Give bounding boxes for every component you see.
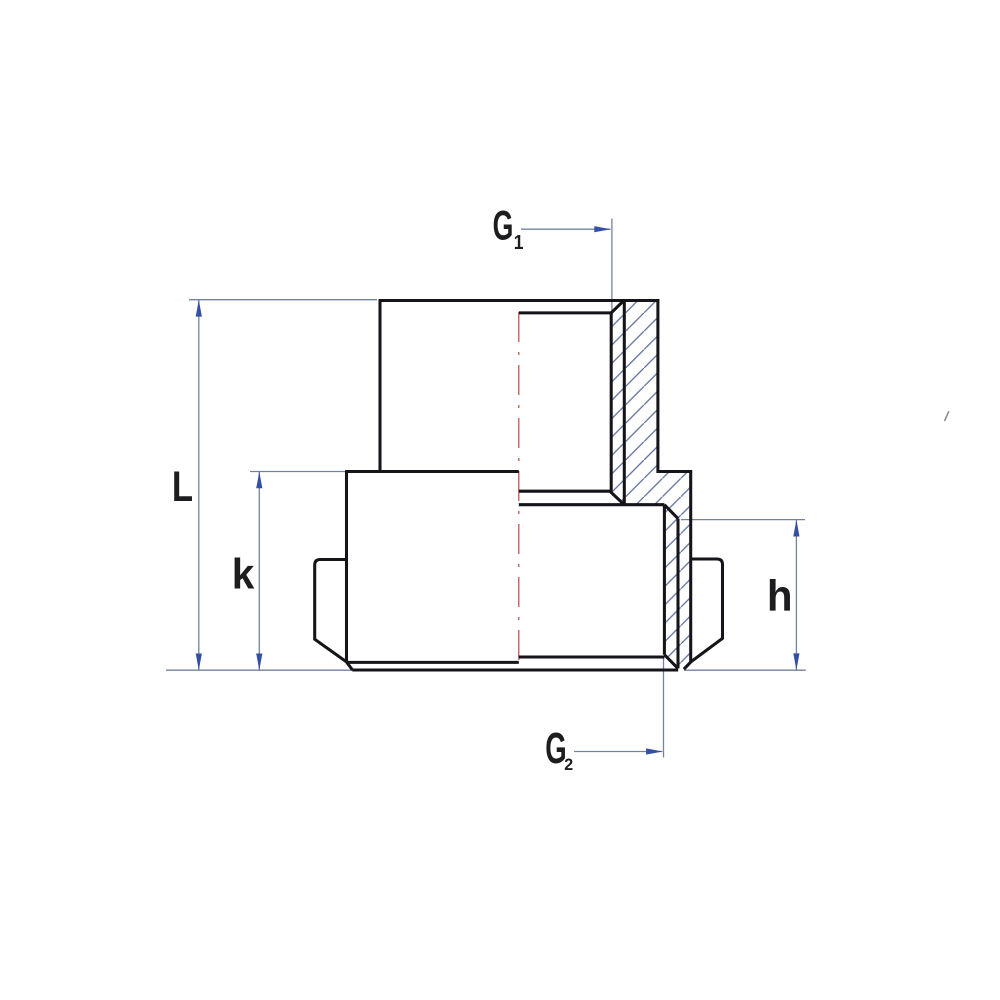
svg-text:1: 1 [514,232,524,255]
svg-text:G: G [493,202,514,249]
svg-text:2: 2 [564,756,573,774]
svg-text:k: k [232,549,255,597]
svg-text:h: h [767,572,793,621]
svg-text:L: L [172,464,193,511]
